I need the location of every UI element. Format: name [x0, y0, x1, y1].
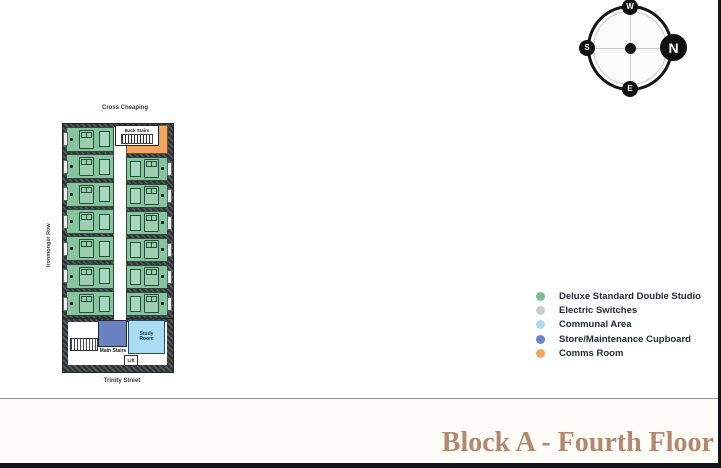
bed-icon — [144, 240, 159, 259]
switch-dot — [161, 221, 164, 224]
legend-dot-comms — [536, 349, 545, 358]
bed-icon — [79, 157, 94, 176]
ensuite-pod — [99, 214, 110, 230]
ensuite-pod — [130, 188, 141, 204]
ensuite-pod — [130, 242, 141, 258]
studio-room — [66, 291, 114, 316]
switch-dot — [70, 275, 73, 278]
switch-dot — [70, 138, 73, 141]
legend-label: Store/Maintenance Cupboard — [559, 334, 691, 345]
study-room-label: Study Room — [135, 332, 159, 343]
studio-room — [66, 127, 114, 152]
legend-label: Communal Area — [559, 319, 632, 330]
bed-icon — [144, 267, 159, 286]
legend-row: Deluxe Standard Double Studio — [536, 289, 701, 303]
studio-room — [66, 236, 114, 261]
switch-dot — [161, 248, 164, 251]
lift-box: Lift — [124, 355, 138, 366]
store-cupboard-room — [98, 320, 127, 347]
switch-dot — [70, 302, 73, 305]
street-label-left: Ironmonger Row — [46, 198, 52, 293]
legend-dot-store — [536, 335, 545, 344]
ensuite-pod — [99, 186, 110, 202]
bed-icon — [144, 159, 159, 178]
studio-room — [126, 184, 168, 209]
bed-icon — [144, 186, 159, 205]
legend-label: Comms Room — [559, 348, 623, 359]
switch-dot — [161, 275, 164, 278]
studio-room — [126, 265, 168, 290]
legend-label: Deluxe Standard Double Studio — [559, 291, 701, 302]
switch-dot — [161, 194, 164, 197]
legend-row: Communal Area — [536, 318, 701, 332]
bed-icon — [79, 212, 94, 231]
switch-dot — [70, 220, 73, 223]
back-stairs: Back Stairs — [115, 125, 159, 146]
ensuite-pod — [99, 268, 110, 284]
ensuite-pod — [99, 296, 110, 312]
legend-dot-studio — [536, 292, 545, 301]
switch-dot — [70, 247, 73, 250]
ensuite-pod — [130, 215, 141, 231]
legend: Deluxe Standard Double Studio Electric S… — [536, 289, 701, 360]
studio-room — [66, 209, 114, 234]
legend-dot-switches — [536, 306, 545, 315]
studio-room — [126, 292, 168, 317]
switch-dot — [70, 165, 73, 168]
bed-icon — [144, 294, 159, 313]
studio-room — [66, 154, 114, 179]
bed-icon — [79, 239, 94, 258]
ensuite-pod — [99, 131, 110, 147]
bed-icon — [79, 185, 94, 204]
bed-icon — [79, 267, 94, 286]
ensuite-pod — [130, 269, 141, 285]
switch-dot — [70, 193, 73, 196]
studio-room — [66, 264, 114, 289]
ensuite-pod — [130, 161, 141, 177]
ensuite-pod — [99, 159, 110, 175]
ensuite-pod — [130, 296, 141, 312]
left-room-column — [66, 127, 114, 316]
back-stairs-label: Back Stairs — [125, 128, 150, 133]
legend-row: Store/Maintenance Cupboard — [536, 332, 701, 346]
studio-room — [126, 157, 168, 182]
legend-label: Electric Switches — [559, 305, 637, 316]
floorplan-slide: W S E N Cross Cheaping Ironmonger Row Tr… — [0, 0, 721, 468]
bed-icon — [79, 130, 94, 149]
bottom-bar — [0, 463, 721, 468]
page-title: Block A - Fourth Floor — [442, 429, 714, 457]
studio-room — [126, 238, 168, 263]
legend-row: Electric Switches — [536, 303, 701, 317]
right-room-column — [126, 125, 168, 316]
legend-row: Comms Room — [536, 346, 701, 360]
ensuite-pod — [99, 241, 110, 257]
bed-icon — [79, 294, 94, 313]
bed-icon — [144, 213, 159, 232]
street-label-top: Cross Cheaping — [75, 105, 175, 111]
studio-room — [66, 182, 114, 207]
switch-dot — [161, 167, 164, 170]
main-stairs-label: Main Stairs — [86, 348, 140, 354]
studio-room — [126, 211, 168, 236]
switch-dot — [161, 302, 164, 305]
stairs-icon — [121, 134, 153, 144]
street-label-bottom: Trinity Street — [72, 378, 172, 384]
legend-dot-communal — [536, 320, 545, 329]
footer-divider — [0, 398, 721, 399]
